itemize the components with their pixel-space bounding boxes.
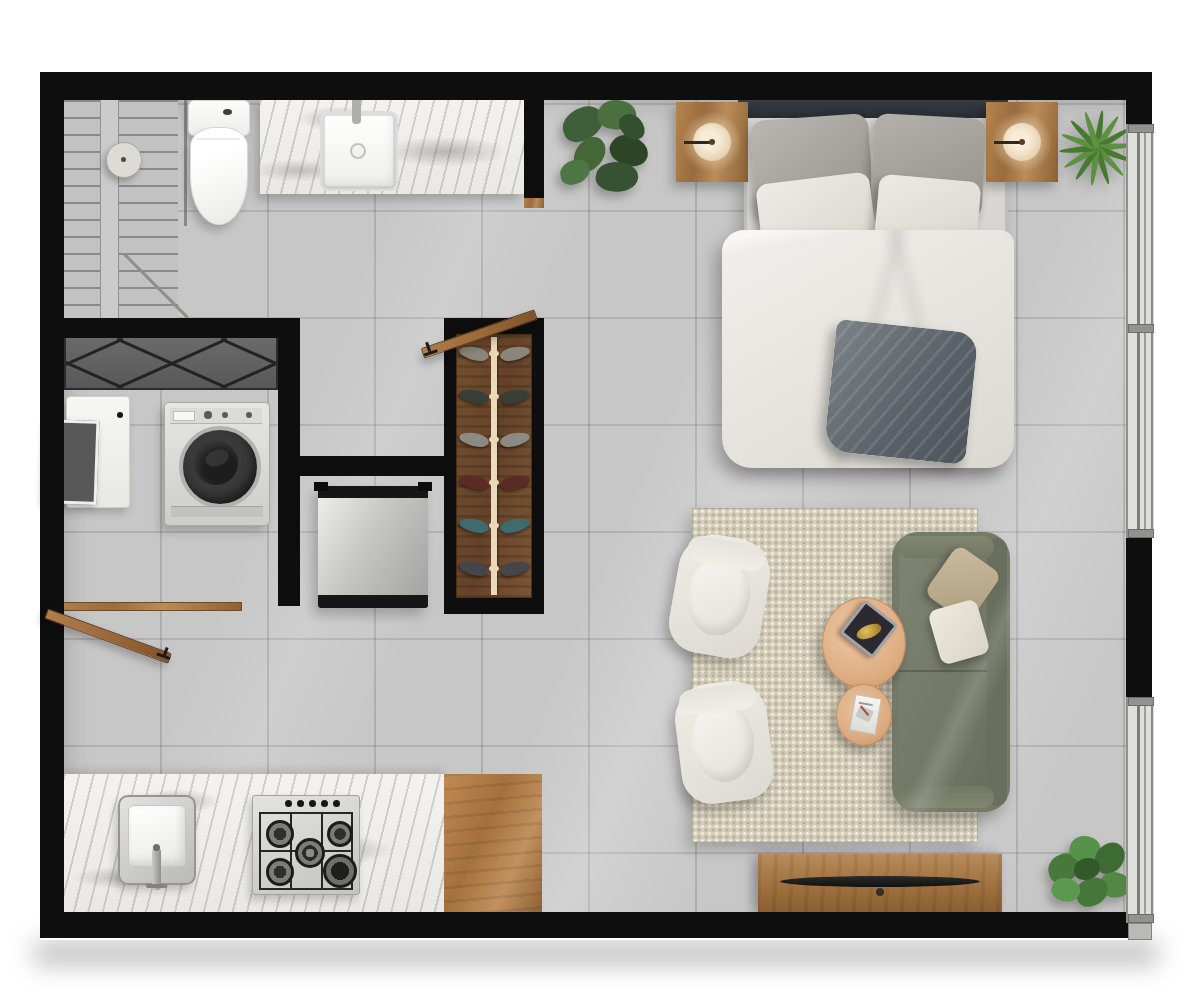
shoe-rack-peg (489, 522, 499, 529)
closet-threshold (44, 602, 242, 611)
shower-center-rail (100, 100, 119, 318)
shower-head-nozzle (121, 157, 126, 162)
shoe-rack-peg (489, 479, 499, 486)
shoe (499, 559, 531, 578)
throw-blanket (823, 319, 978, 465)
wall-bathroom-right (524, 100, 544, 198)
sliding-wardrobe (64, 336, 278, 390)
burner (266, 820, 294, 848)
shoe (458, 516, 490, 535)
toilet-flush-button (223, 109, 232, 115)
window-frame-foot (1128, 923, 1152, 940)
window-lower-right (1126, 697, 1154, 923)
sofa (892, 532, 1010, 812)
washing-machine (164, 402, 270, 526)
wall-bathroom-bottom (64, 318, 300, 338)
vanity-drain (350, 143, 366, 159)
shoe (458, 387, 490, 406)
lamp-center-left (709, 139, 715, 145)
shoe-rack-peg (489, 436, 499, 443)
shoe-rack-rail (491, 337, 497, 595)
shoe (458, 473, 490, 492)
refrigerator (318, 486, 428, 608)
shoe (499, 387, 531, 406)
shoe (499, 430, 531, 449)
burner (266, 858, 294, 886)
shoe (499, 473, 531, 492)
shoe-rack-peg (489, 350, 499, 357)
yucca-plant (1060, 104, 1134, 184)
cooktop-knob (285, 800, 292, 807)
shoe (458, 559, 490, 578)
toilet-bowl (190, 127, 248, 225)
toilet-seat-line (196, 138, 240, 140)
kitchen-faucet-spout (153, 844, 160, 851)
burner-center (295, 838, 325, 868)
wall-right-mid (1126, 538, 1152, 697)
washer-door (179, 426, 261, 508)
pothos-plant (1046, 834, 1130, 910)
cooktop-knob (309, 800, 316, 807)
wall-closet-right (278, 318, 300, 606)
kitchen-counter-wood (444, 774, 542, 912)
shoe-rack (456, 334, 532, 598)
burner (327, 821, 353, 847)
window-upper-right (1126, 124, 1154, 538)
shoe (499, 516, 531, 535)
tv-stand-knob (876, 888, 884, 896)
tv-soundbar (780, 876, 980, 887)
gas-cooktop (252, 795, 360, 895)
monstera-plant (558, 100, 650, 204)
shoe-rack-peg (489, 565, 499, 572)
wall-fridge-nook (300, 456, 446, 476)
burner-large (323, 854, 357, 888)
wall-bottom (40, 912, 1134, 938)
bathroom-door-threshold (524, 198, 544, 208)
wall-right-top-corner (1126, 72, 1152, 124)
shower (64, 100, 178, 318)
cooktop-knob (297, 800, 304, 807)
wall-top (40, 72, 1152, 100)
shoe-rack-peg (489, 393, 499, 400)
lamp-center-right (1019, 139, 1025, 145)
floor-plan (0, 0, 1200, 1000)
vanity-faucet (352, 100, 361, 124)
wall-left (40, 72, 64, 938)
shoe (458, 430, 490, 449)
washer-control-panel (170, 408, 262, 424)
shoe (458, 344, 490, 363)
cooktop-knob (333, 800, 340, 807)
laundry-sink-drain (117, 412, 123, 418)
glass-partition (184, 100, 187, 226)
shoe (499, 344, 531, 363)
cooktop-knob (321, 800, 328, 807)
kitchen-faucet-handle (146, 884, 167, 888)
armchair-bottom (671, 677, 777, 807)
